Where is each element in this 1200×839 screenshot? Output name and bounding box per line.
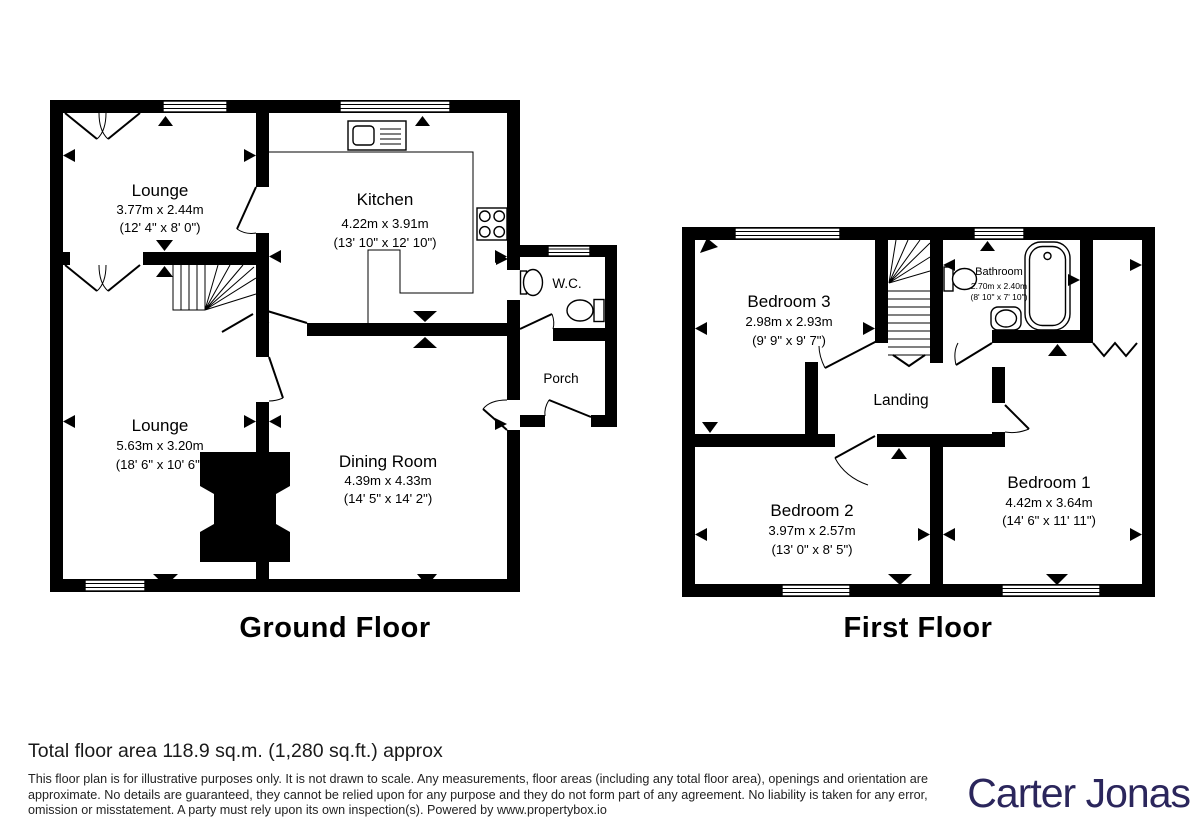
lounge-main-dims-m: 5.63m x 3.20m (116, 438, 203, 453)
bedroom3-door (819, 341, 877, 368)
wc-basin-icon (521, 270, 543, 296)
direction-arrows (63, 116, 508, 586)
bathroom-dims-m: 2.70m x 2.40m (971, 281, 1027, 291)
kitchen-dims-m: 4.22m x 3.91m (341, 216, 428, 231)
total-floor-area: Total floor area 118.9 sq.m. (1,280 sq.f… (28, 740, 443, 763)
wc-door (520, 314, 554, 329)
patio-double-door (65, 113, 140, 139)
porch-entry-door (545, 400, 591, 417)
window-lounge-bottom (85, 580, 145, 591)
bedroom3-dims-m: 2.98m x 2.93m (745, 314, 832, 329)
first-floor-title: First Floor (768, 612, 1068, 645)
bedroom1-label: Bedroom 1 (1007, 473, 1090, 492)
dining-dims-m: 4.39m x 4.33m (344, 473, 431, 488)
lounge-kitchen-door (237, 187, 256, 234)
window-bedroom3 (735, 228, 840, 239)
understairs-door (222, 314, 253, 332)
kitchen-dims-ft: (13' 10" x 12' 10") (333, 235, 436, 250)
window-kitchen (340, 101, 450, 112)
bedroom1-dims-m: 4.42m x 3.64m (1005, 495, 1092, 510)
wc-toilet-icon (567, 300, 604, 322)
window-bedroom2 (782, 585, 850, 596)
first-floor-plan: Bedroom 3 2.98m x 2.93m (9' 9" x 9' 7") … (672, 219, 1162, 609)
ground-walls (50, 100, 617, 592)
bathtub-icon (1025, 242, 1070, 330)
kitchen-label: Kitchen (357, 190, 414, 209)
bedroom2-door (835, 436, 875, 485)
chimney-breast (200, 452, 290, 562)
carter-jonas-logo: Carter Jonas (950, 770, 1190, 817)
ground-floor-plan: Lounge 3.77m x 2.44m (12' 4" x 8' 0") Ki… (40, 88, 620, 598)
bedroom3-dims-ft: (9' 9" x 9' 7") (752, 333, 826, 348)
lounge-main-dims-ft: (18' 6" x 10' 6") (116, 457, 204, 472)
bedroom3-label: Bedroom 3 (747, 292, 830, 311)
bedroom1-dims-ft: (14' 6" x 11' 11") (1002, 513, 1096, 528)
landing-label: Landing (873, 392, 928, 409)
wc-label: W.C. (552, 276, 581, 291)
lounge-divider-double-door (65, 265, 140, 291)
lounge-top-dims-ft: (12' 4" x 8' 0") (119, 220, 200, 235)
bedroom1-door (1005, 405, 1029, 433)
porch-label: Porch (543, 371, 578, 386)
disclaimer-text: This floor plan is for illustrative purp… (28, 772, 972, 819)
staircase (888, 240, 930, 366)
direction-arrows (695, 238, 1142, 585)
window-bathroom (974, 228, 1024, 239)
dining-label: Dining Room (339, 452, 437, 471)
lounge-top-dims-m: 3.77m x 2.44m (116, 202, 203, 217)
kitchen-hob-icon (477, 208, 507, 240)
window-bedroom1 (1002, 585, 1100, 596)
kitchen-sink-icon (348, 121, 406, 150)
floorplan-page: Lounge 3.77m x 2.44m (12' 4" x 8' 0") Ki… (0, 0, 1200, 839)
bedroom2-label: Bedroom 2 (770, 501, 853, 520)
first-walls (682, 227, 1155, 597)
kitchen-dining-door (264, 310, 307, 323)
doors (819, 341, 1137, 485)
wardrobe-double-doors (1093, 343, 1137, 356)
lounge-top-label: Lounge (132, 181, 189, 200)
bedroom2-dims-m: 3.97m x 2.57m (768, 523, 855, 538)
ground-floor-title: Ground Floor (185, 612, 485, 645)
window-wc (548, 246, 590, 256)
lounge-dining-door (269, 357, 283, 401)
bedroom2-dims-ft: (13' 0" x 8' 5") (771, 542, 852, 557)
bathroom-basin-icon (991, 307, 1021, 330)
bathroom-door (955, 343, 992, 365)
bathroom-label: Bathroom (975, 266, 1023, 278)
stairs-down-arrow (893, 355, 925, 366)
bathroom-dims-ft: (8' 10" x 7' 10") (970, 292, 1027, 302)
lounge-main-label: Lounge (132, 416, 189, 435)
dining-dims-ft: (14' 5" x 14' 2") (344, 491, 432, 506)
window-lounge-top (163, 101, 227, 112)
staircase (173, 265, 256, 310)
